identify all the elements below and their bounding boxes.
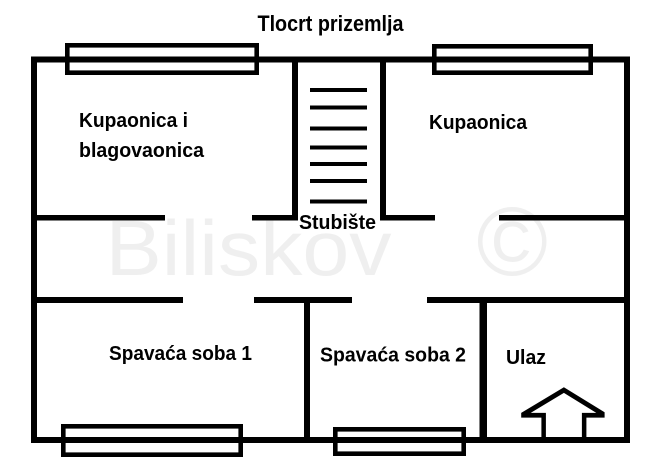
svg-text:Kupaonica i: Kupaonica i bbox=[79, 110, 188, 132]
svg-text:Ulaz: Ulaz bbox=[506, 347, 546, 369]
svg-text:Tlocrt prizemlja: Tlocrt prizemlja bbox=[258, 11, 405, 36]
svg-text:Spavaća soba 2: Spavaća soba 2 bbox=[320, 345, 466, 367]
svg-text:©: © bbox=[477, 187, 548, 296]
svg-text:blagovaonica: blagovaonica bbox=[79, 140, 205, 162]
svg-text:Stubište: Stubište bbox=[299, 212, 376, 234]
svg-text:Kupaonica: Kupaonica bbox=[429, 112, 528, 134]
svg-text:Spavaća soba 1: Spavaća soba 1 bbox=[109, 343, 252, 365]
